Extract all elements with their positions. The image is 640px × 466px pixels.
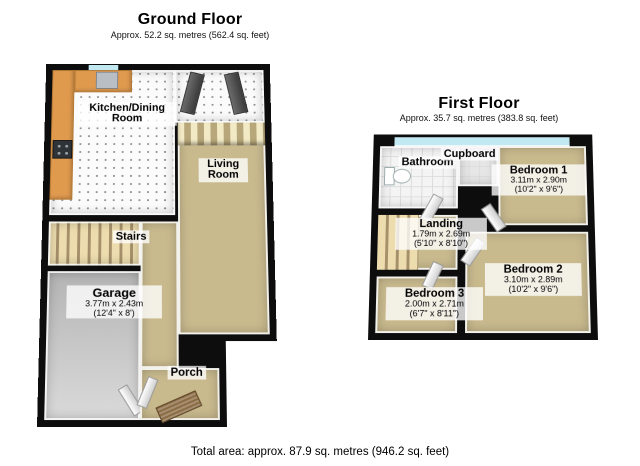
hob-icon — [52, 140, 72, 159]
bedroom3-label: Bedroom 3 2.00m x 2.71m (6'7" x 8'11") — [385, 287, 483, 320]
kitchen-counter-left — [49, 70, 74, 200]
cupboard-name: Cupboard — [444, 149, 496, 160]
total-area-text: Total area: approx. 87.9 sq. metres (946… — [0, 446, 640, 458]
sink-icon — [96, 72, 118, 89]
bedroom1-dims-ft: (10'2" x 9'6") — [495, 186, 584, 195]
kitchen-label: Kitchen/Dining Room — [77, 102, 176, 125]
first-floor-subtitle: Approx. 35.7 sq. metres (383.8 sq. feet) — [379, 113, 579, 123]
ground-floor-title: Ground Floor — [90, 11, 290, 29]
stairs-name: Stairs — [116, 231, 147, 242]
garage-name: Garage — [69, 286, 159, 299]
landing-dims-ft: (5'10" x 8'10") — [398, 240, 484, 249]
first-floor-windows — [394, 137, 569, 145]
cupboard-label: Cupboard — [441, 148, 499, 161]
first-floor-title: First Floor — [379, 95, 579, 113]
garage-dims-ft: (12'4" x 8') — [69, 309, 159, 318]
bedroom2-label: Bedroom 2 3.10m x 2.89m (10'2" x 9'6") — [485, 263, 582, 296]
living-name: Living Room — [201, 159, 245, 181]
bedroom2-dims-ft: (10'2" x 9'6") — [488, 285, 579, 294]
porch-label: Porch — [168, 366, 206, 380]
living-label: Living Room — [199, 158, 249, 182]
room-living — [178, 123, 270, 335]
first-floor-plan: Bathroom Cupboard Bedroom 1 3.11m x 2.90… — [368, 135, 598, 340]
ground-floor-subtitle: Approx. 52.2 sq. metres (562.4 sq. feet) — [90, 30, 290, 40]
bedroom3-dims-ft: (6'7" x 8'11") — [388, 310, 480, 320]
outside-area — [226, 341, 279, 427]
kitchen-name: Kitchen/Dining Room — [80, 103, 174, 125]
stairs-label: Stairs — [113, 230, 150, 243]
landing-label: Landing 1.79m x 2.69m (5'10" x 8'10") — [395, 218, 487, 250]
porch-name: Porch — [171, 367, 203, 379]
curtains — [178, 123, 266, 146]
ground-floor-plan: Kitchen/Dining Room Living Room Stairs G… — [37, 64, 279, 427]
bedroom1-label: Bedroom 1 3.11m x 2.90m (10'2" x 9'6") — [492, 164, 587, 195]
garage-label: Garage 3.77m x 2.43m (12'4" x 8') — [66, 285, 162, 318]
